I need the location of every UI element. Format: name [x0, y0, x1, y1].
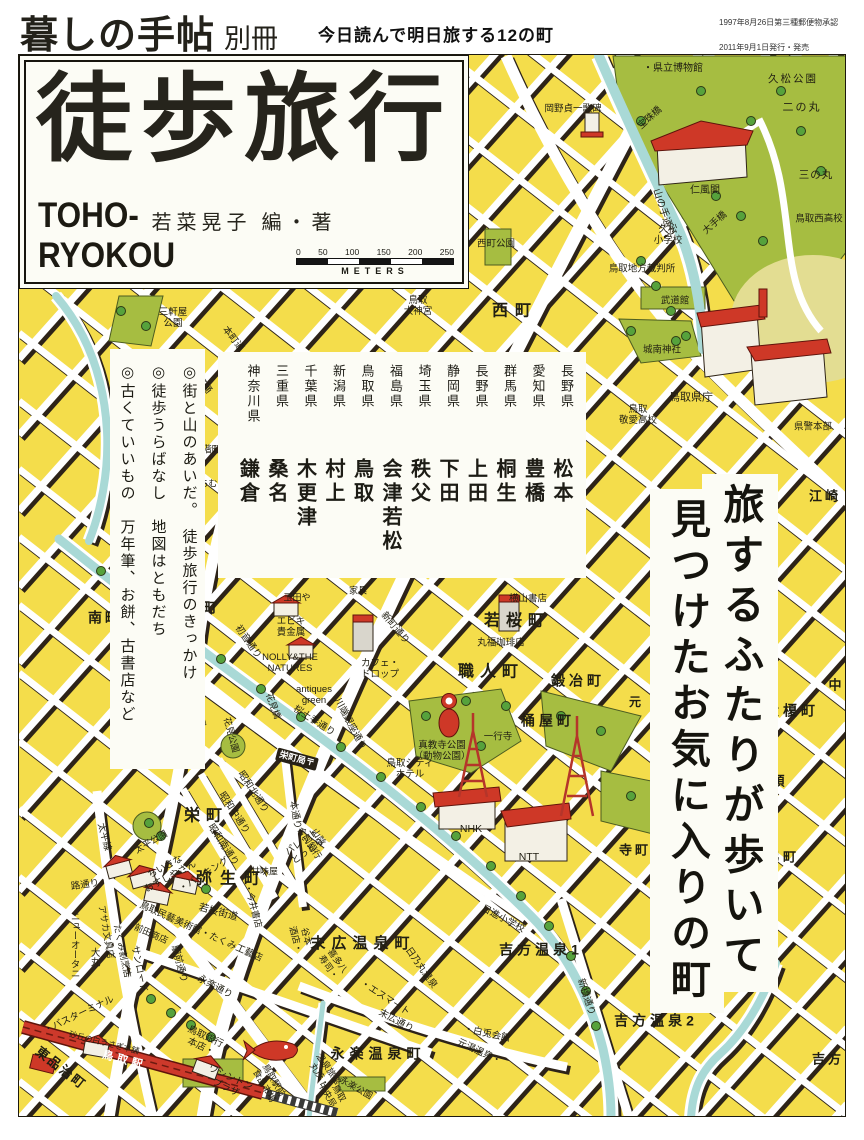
town-city: 桐生 — [491, 458, 520, 554]
scale-ticks: 050100150200250 — [296, 247, 454, 257]
town-city: 桑名 — [263, 458, 292, 554]
main-title: 徒歩旅行 — [20, 72, 468, 168]
map-scale-bar: 050100150200250 METERS — [296, 247, 454, 276]
town-city: 下田 — [434, 458, 463, 554]
town-list-box: 長野県愛知県群馬県長野県静岡県埼玉県福島県鳥取県新潟県千葉県三重県神奈川県 松本… — [218, 352, 586, 578]
magazine-logo: 暮しの手帖別冊 — [20, 4, 278, 59]
fineprint-line: 1997年8月26日第三種郵便物承認 — [719, 17, 838, 29]
theme-item: ◎街と山のあいだ。 徒歩旅行のきっかけ — [177, 363, 201, 755]
scale-segment — [297, 259, 328, 264]
themes-strip: ◎街と山のあいだ。 徒歩旅行のきっかけ◎徒歩うらばなし 地図はともだち◎古くてい… — [110, 349, 205, 769]
town-prefecture: 群馬県 — [491, 364, 520, 424]
scale-bar-segments — [296, 258, 454, 265]
title-box-bottom-row: TOHO-RYOKOU 050100150200250 METERS — [38, 196, 454, 276]
scale-segment — [391, 259, 422, 264]
town-city: 会津若松 — [377, 458, 406, 554]
monkey-icon — [439, 694, 459, 738]
scale-tick: 150 — [377, 247, 391, 257]
scale-tick: 100 — [345, 247, 359, 257]
scale-tick: 50 — [318, 247, 327, 257]
fineprint-line: 2011年9月1日発行・発売 — [719, 42, 838, 54]
theme-item: ◎古くていいもの 万年筆、お餅、古書店など — [115, 363, 139, 755]
scale-segment — [422, 259, 453, 264]
town-prefecture: 福島県 — [377, 364, 406, 424]
town-city: 松本 — [548, 458, 577, 554]
scale-segment — [359, 259, 390, 264]
town-prefecture: 埼玉県 — [405, 364, 434, 424]
town-city: 木更津 — [291, 458, 320, 554]
town-city: 豊橋 — [519, 458, 548, 554]
town-city: 鎌倉 — [234, 458, 263, 554]
logo-main-text: 暮しの手帖 — [20, 15, 215, 57]
town-prefecture: 三重県 — [263, 364, 292, 424]
town-prefecture: 静岡県 — [434, 364, 463, 424]
town-prefecture: 長野県 — [548, 364, 577, 424]
town-city: 村上 — [320, 458, 349, 554]
town-prefecture: 長野県 — [462, 364, 491, 424]
town-prefecture: 新潟県 — [320, 364, 349, 424]
town-prefecture: 愛知県 — [519, 364, 548, 424]
town-city: 上田 — [462, 458, 491, 554]
town-prefecture: 鳥取県 — [348, 364, 377, 424]
theme-item: ◎徒歩うらばなし 地図はともだち — [146, 363, 170, 755]
romaji-title: TOHO-RYOKOU — [38, 196, 270, 276]
logo-suffix-text: 別冊 — [224, 24, 278, 54]
town-prefecture: 千葉県 — [291, 364, 320, 424]
scale-unit-label: METERS — [296, 266, 454, 276]
town-city: 秩父 — [405, 458, 434, 554]
magazine-cover: 暮しの手帖別冊 今日読んで明日旅する12の町 1997年8月26日第三種郵便物承… — [0, 0, 864, 1140]
scale-tick: 0 — [296, 247, 301, 257]
scale-tick: 200 — [408, 247, 422, 257]
catch-copy-line-2: 見つけたお気に入りの町 — [650, 489, 724, 1013]
scale-segment — [328, 259, 359, 264]
scale-tick: 250 — [440, 247, 454, 257]
header-tagline: 今日読んで明日旅する12の町 — [318, 21, 554, 46]
town-city: 鳥取 — [348, 458, 377, 554]
title-box: 徒歩旅行 若菜晃子 編・著 TOHO-RYOKOU 05010015020025… — [19, 55, 469, 289]
town-prefecture: 神奈川県 — [234, 364, 263, 424]
prefecture-row: 長野県愛知県群馬県長野県静岡県埼玉県福島県鳥取県新潟県千葉県三重県神奈川県 — [234, 364, 576, 424]
city-row: 松本豊橋桐生上田下田秩父会津若松鳥取村上木更津桑名鎌倉 — [234, 458, 576, 554]
